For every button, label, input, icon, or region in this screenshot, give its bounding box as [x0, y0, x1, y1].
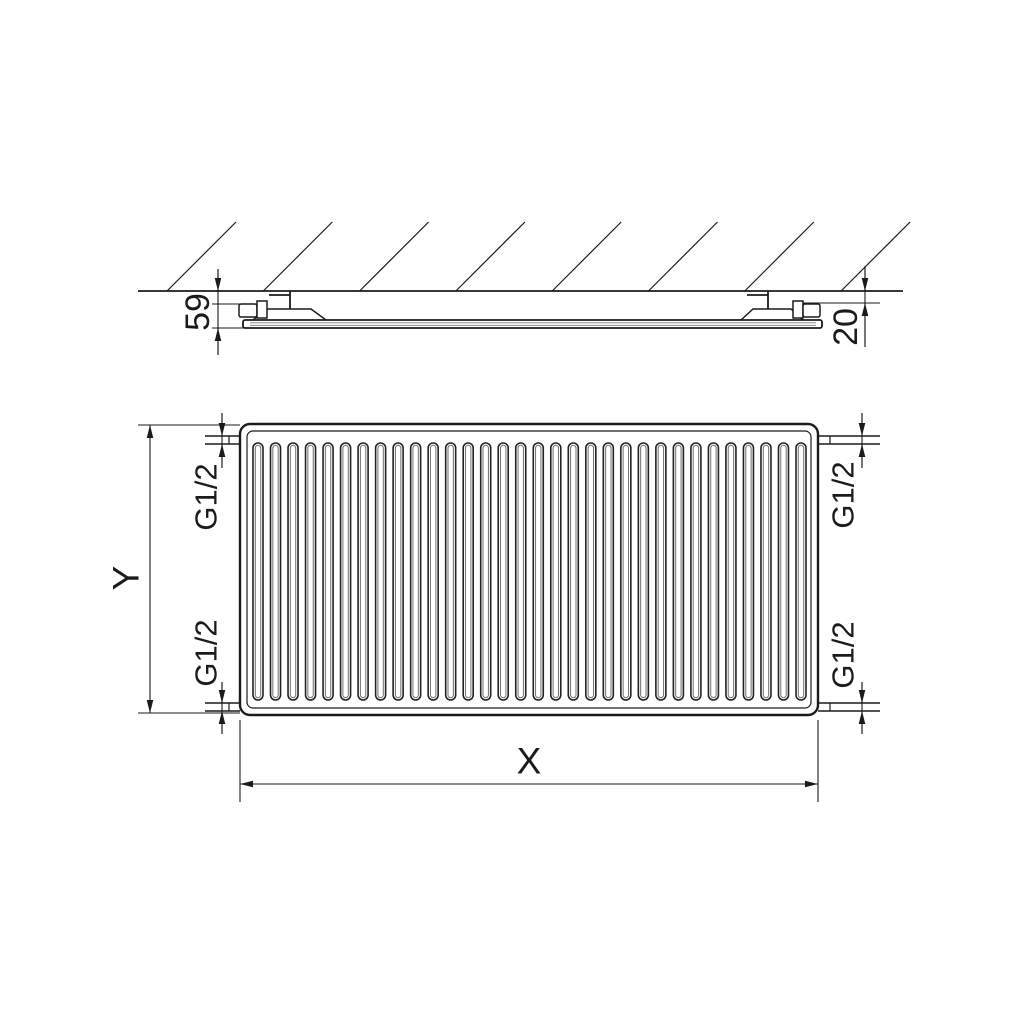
channel-outline: [796, 443, 806, 700]
channel-outline: [533, 443, 543, 700]
hatch-line: [649, 222, 718, 291]
channel-outline: [778, 443, 788, 700]
connection-bottom-right: G1/2: [818, 621, 880, 734]
channel-outline: [376, 443, 386, 700]
channel-outline: [551, 443, 561, 700]
channel-outline: [603, 443, 613, 700]
hatch-line: [456, 222, 525, 291]
channel-outline: [761, 443, 771, 700]
channel-outline: [516, 443, 526, 700]
bracket-fitting: [239, 304, 257, 317]
hatch-line: [263, 222, 332, 291]
hatch-line: [745, 222, 814, 291]
front-view: G1/2 G1/2 G1/2: [106, 413, 881, 802]
hatch-line: [841, 222, 910, 291]
convector-channels: [253, 443, 806, 700]
side-view: 59 20: [138, 222, 910, 355]
channel-outline: [411, 443, 421, 700]
wall-clearance-label: 20: [827, 308, 865, 346]
channel-outline: [253, 443, 263, 700]
channel-outline: [586, 443, 596, 700]
bracket-fitting-flange: [793, 301, 803, 318]
dimension-width: X: [240, 720, 818, 802]
channel-outline: [428, 443, 438, 700]
channel-outline: [691, 443, 701, 700]
channel-outline: [498, 443, 508, 700]
channel-outline: [638, 443, 648, 700]
channel-outline: [323, 443, 333, 700]
channel-outline: [446, 443, 456, 700]
connection-top-left: G1/2: [189, 413, 241, 531]
depth-label: 59: [179, 293, 217, 331]
channel-outline: [393, 443, 403, 700]
channel-outline: [568, 443, 578, 700]
channel-outline: [621, 443, 631, 700]
channel-outline: [288, 443, 298, 700]
channel-outline: [708, 443, 718, 700]
radiator-panel-profile: [243, 320, 822, 328]
connection-size-label: G1/2: [826, 461, 861, 528]
bracket-fitting: [803, 304, 820, 317]
channel-outline: [726, 443, 736, 700]
channel-outline: [463, 443, 473, 700]
hatch-line: [552, 222, 621, 291]
connection-size-label: G1/2: [189, 619, 224, 686]
mounting-bracket-right: [741, 291, 820, 320]
channel-outline: [656, 443, 666, 700]
channel-outline: [481, 443, 491, 700]
wall-hatching: [167, 222, 910, 291]
bracket-fitting-flange: [257, 301, 267, 318]
channel-outline: [358, 443, 368, 700]
connection-bottom-left: G1/2: [189, 619, 241, 734]
connection-size-label: G1/2: [826, 621, 861, 688]
channel-outline: [341, 443, 351, 700]
mounting-bracket-left: [239, 291, 326, 320]
connection-size-label: G1/2: [189, 463, 224, 530]
hatch-line: [167, 222, 236, 291]
channel-outline: [271, 443, 281, 700]
height-label: Y: [106, 566, 147, 591]
channel-outline: [743, 443, 753, 700]
channel-outline: [306, 443, 316, 700]
dimension-depth: 59: [179, 269, 246, 355]
channel-outline: [673, 443, 683, 700]
connection-top-right: G1/2: [818, 413, 880, 529]
radiator-dimension-drawing: 59 20 G1/2: [0, 0, 1024, 1024]
width-label: X: [517, 741, 542, 782]
hatch-line: [360, 222, 429, 291]
